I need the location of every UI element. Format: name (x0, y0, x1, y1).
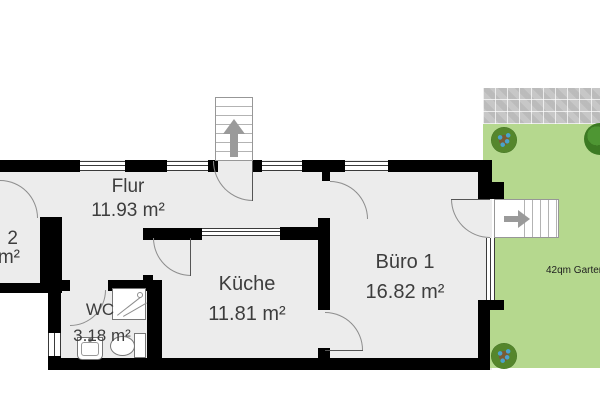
room-label-flur: Flur (112, 177, 145, 196)
window (202, 228, 280, 236)
room-area-cutoff: m² (0, 248, 20, 267)
toilet-cistern-icon (134, 333, 146, 358)
bush-icon (491, 127, 517, 153)
wall (253, 160, 262, 172)
wall (478, 172, 492, 199)
window (262, 161, 302, 171)
window (167, 161, 208, 171)
garden-grass (559, 199, 600, 238)
right-arrow-icon (504, 209, 534, 229)
window (80, 161, 125, 171)
room-label-cutoff: 2 (0, 229, 18, 248)
wall (48, 280, 70, 291)
window (345, 161, 388, 171)
wall (318, 218, 330, 310)
wall (147, 280, 162, 370)
shower-icon (112, 288, 146, 320)
door-leaf (252, 161, 253, 201)
outside-area (0, 293, 48, 370)
garden-paved-path (483, 88, 600, 124)
door-leaf (190, 238, 191, 276)
room-label-buero1: Büro 1 (376, 252, 435, 272)
wall (48, 358, 490, 370)
wall (143, 275, 153, 285)
garden-label: 42qm Garten (546, 266, 600, 276)
door-leaf (451, 199, 490, 200)
room-label-wc: WC (86, 301, 114, 318)
up-arrow-icon (222, 119, 246, 159)
wall (280, 227, 318, 240)
room-area-wc: 3.18 m² (73, 327, 131, 344)
room-area-buero1: 16.82 m² (366, 282, 445, 302)
room-area-flur: 11.93 m² (91, 201, 165, 220)
window (48, 333, 61, 356)
wall (125, 160, 167, 172)
wall (0, 160, 80, 172)
wall (48, 356, 61, 370)
door-leaf (325, 350, 363, 351)
wall (48, 285, 61, 333)
wall (322, 170, 330, 181)
bush-icon (491, 343, 517, 369)
floorplan-canvas: 42qm Garten (0, 0, 600, 400)
wall (492, 182, 504, 199)
room-area-kueche: 11.81 m² (208, 304, 285, 324)
wall (478, 310, 490, 358)
room-label-kueche: Küche (219, 274, 276, 294)
wall (478, 300, 504, 310)
window (486, 238, 495, 300)
wall (388, 160, 492, 172)
